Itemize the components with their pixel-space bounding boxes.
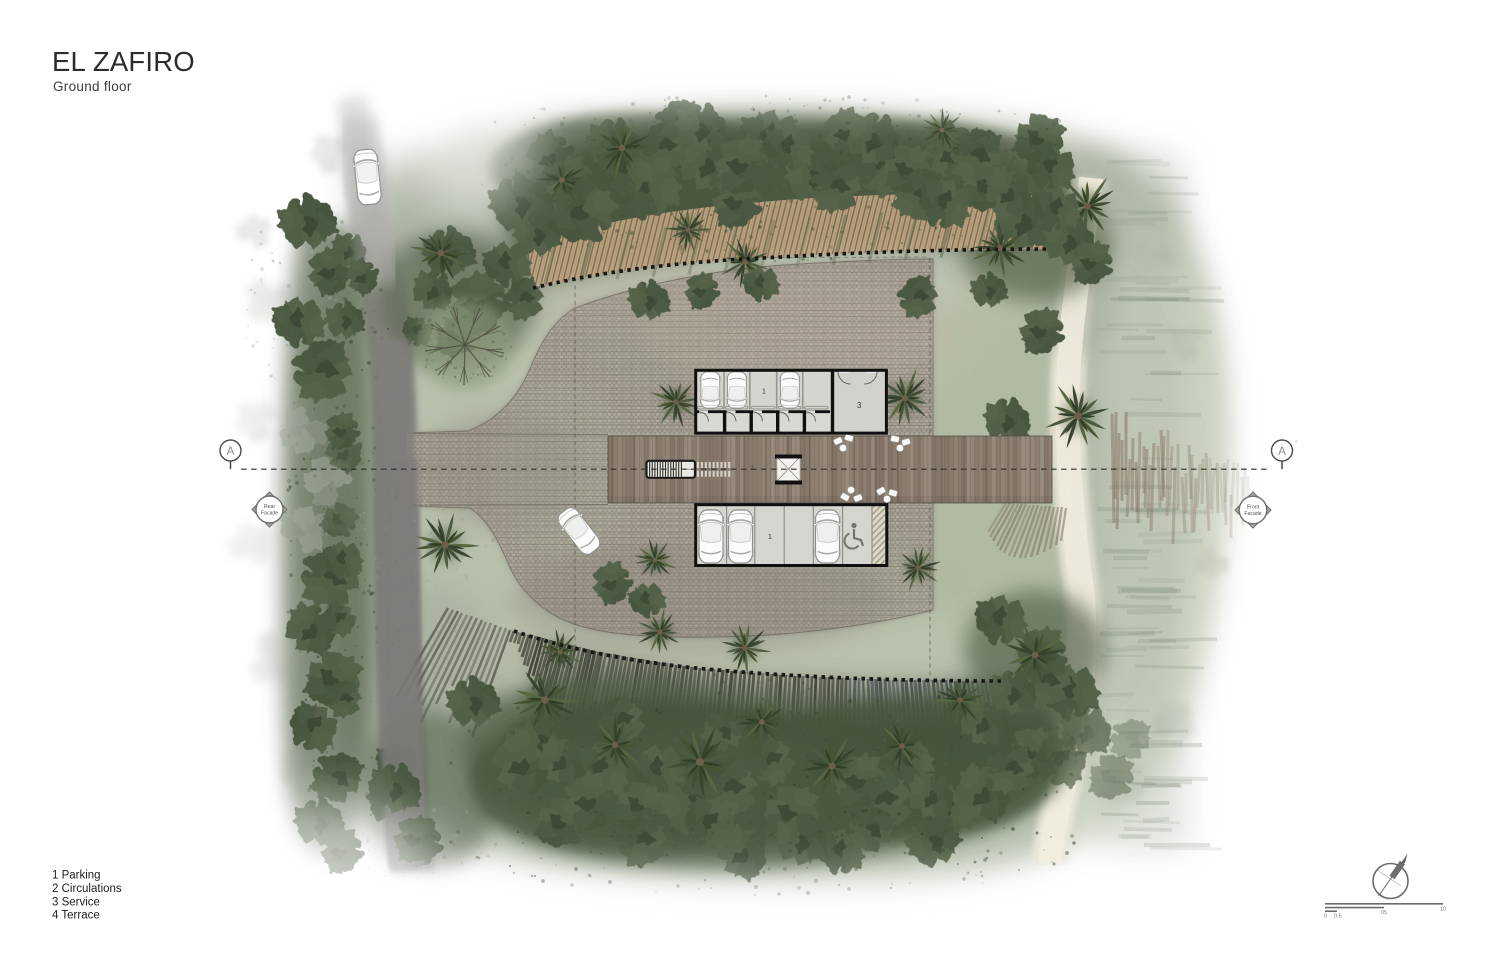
svg-text:Facade: Facade (261, 511, 278, 517)
svg-text:Rear: Rear (264, 504, 276, 510)
svg-text:Facade: Facade (1244, 511, 1261, 517)
svg-text:1 Parking: 1 Parking (52, 870, 101, 882)
svg-text:10: 10 (1440, 907, 1446, 913)
svg-text:0.5: 0.5 (1334, 914, 1342, 920)
svg-text:A: A (1278, 444, 1286, 458)
svg-text:2 Circulations: 2 Circulations (52, 883, 122, 895)
svg-text:Ground floor: Ground floor (53, 79, 132, 94)
svg-text:EL ZAFIRO: EL ZAFIRO (52, 46, 195, 77)
svg-text:Front: Front (1247, 505, 1260, 511)
svg-text:0: 0 (1324, 914, 1327, 920)
svg-text:’: ’ (1295, 439, 1297, 449)
svg-text:A: A (226, 444, 234, 458)
svg-text:05: 05 (1381, 910, 1387, 916)
svg-text:3 Service: 3 Service (52, 896, 100, 908)
svg-text:4 Terrace: 4 Terrace (52, 910, 100, 922)
